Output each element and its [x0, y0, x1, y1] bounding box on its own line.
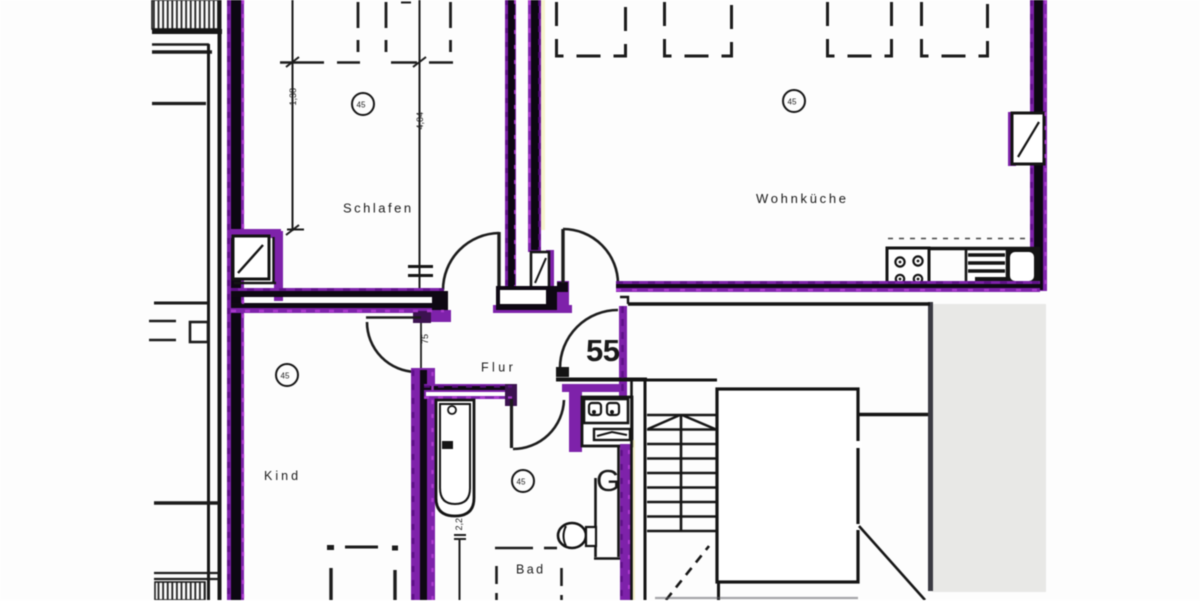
svg-text:45: 45	[517, 478, 526, 487]
svg-text:G: G	[596, 463, 620, 498]
svg-text:Schlafen: Schlafen	[343, 201, 414, 216]
svg-text:Flur: Flur	[481, 361, 516, 375]
svg-text:45: 45	[788, 98, 797, 107]
svg-text:Kind: Kind	[264, 469, 301, 483]
svg-text:Wohnküche: Wohnküche	[756, 191, 849, 206]
svg-text:1,38: 1,38	[288, 88, 298, 106]
svg-text:Bad: Bad	[516, 563, 545, 577]
svg-text:4,04: 4,04	[415, 112, 425, 130]
svg-text:45: 45	[281, 372, 290, 381]
svg-text:2,2: 2,2	[454, 518, 464, 531]
svg-text:55: 55	[586, 333, 620, 368]
svg-text:45: 45	[357, 101, 366, 110]
